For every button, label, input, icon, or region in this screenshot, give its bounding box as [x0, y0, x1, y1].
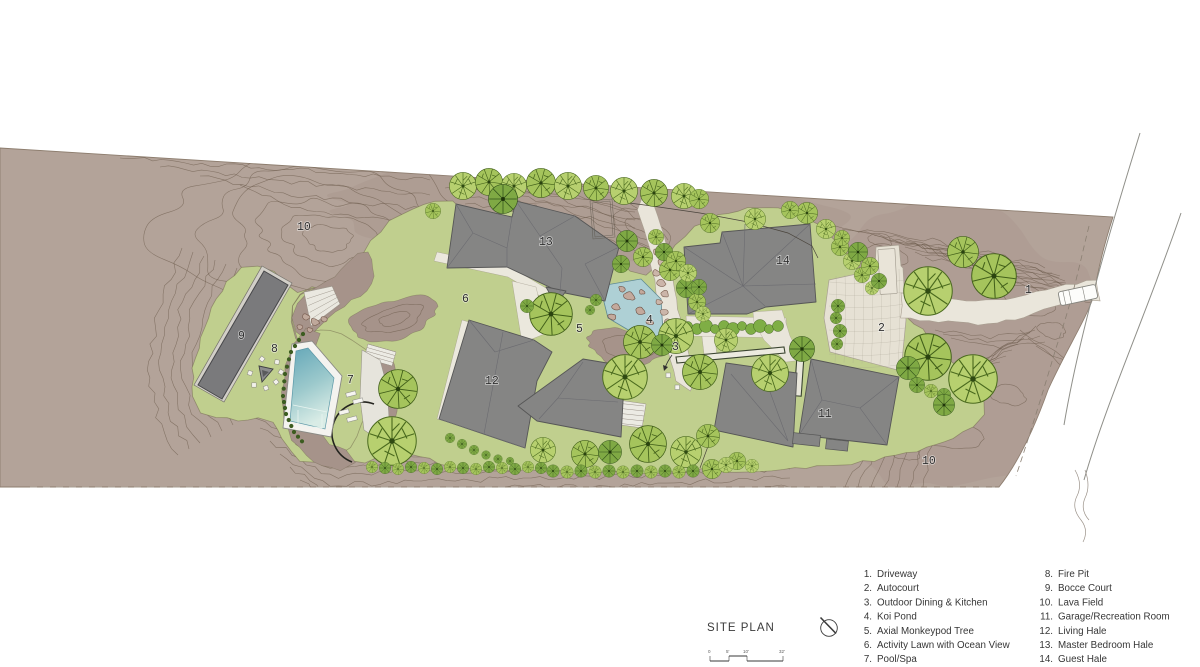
- svg-text:4: 4: [646, 314, 653, 327]
- svg-text:14: 14: [776, 255, 790, 268]
- svg-text:Pool/Spa: Pool/Spa: [877, 654, 917, 665]
- svg-text:Driveway: Driveway: [877, 569, 917, 580]
- svg-text:12.: 12.: [1039, 626, 1053, 637]
- svg-text:9: 9: [238, 330, 245, 343]
- svg-text:Activity Lawn with Ocean View: Activity Lawn with Ocean View: [877, 640, 1011, 651]
- svg-text:11.: 11.: [1040, 612, 1053, 623]
- svg-text:Living Hale: Living Hale: [1058, 626, 1107, 637]
- svg-text:11: 11: [818, 408, 832, 421]
- svg-text:4.: 4.: [864, 612, 872, 623]
- svg-text:12: 12: [485, 375, 499, 388]
- svg-text:13: 13: [539, 236, 553, 249]
- svg-text:14.: 14.: [1039, 654, 1053, 665]
- svg-text:1.: 1.: [864, 569, 872, 580]
- svg-text:Master Bedroom Hale: Master Bedroom Hale: [1058, 640, 1154, 651]
- svg-text:9.: 9.: [1045, 583, 1053, 594]
- svg-text:3.: 3.: [864, 597, 872, 608]
- svg-text:6.: 6.: [864, 640, 872, 651]
- svg-text:1: 1: [1025, 284, 1032, 297]
- svg-text:SITE PLAN: SITE PLAN: [707, 622, 775, 634]
- svg-text:Axial Monkeypod Tree: Axial Monkeypod Tree: [877, 626, 974, 637]
- svg-text:Koi Pond: Koi Pond: [877, 612, 917, 623]
- svg-text:Outdoor Dining & Kitchen: Outdoor Dining & Kitchen: [877, 597, 988, 608]
- svg-text:2: 2: [878, 322, 885, 335]
- svg-text:Garage/Recreation Room: Garage/Recreation Room: [1058, 612, 1170, 623]
- svg-text:7: 7: [347, 374, 354, 387]
- svg-text:10.: 10.: [1039, 597, 1053, 608]
- svg-text:32': 32': [779, 649, 785, 654]
- svg-text:3: 3: [672, 341, 679, 354]
- svg-text:8: 8: [271, 343, 278, 356]
- svg-text:5': 5': [726, 649, 730, 654]
- svg-text:8.: 8.: [1045, 569, 1053, 580]
- svg-text:13.: 13.: [1039, 640, 1053, 651]
- svg-text:Bocce Court: Bocce Court: [1058, 583, 1112, 594]
- svg-text:Lava Field: Lava Field: [1058, 597, 1103, 608]
- svg-text:Guest Hale: Guest Hale: [1058, 654, 1108, 665]
- svg-text:Autocourt: Autocourt: [877, 583, 919, 594]
- svg-text:6: 6: [462, 293, 469, 306]
- svg-text:0: 0: [708, 649, 711, 654]
- svg-text:Fire Pit: Fire Pit: [1058, 569, 1089, 580]
- svg-text:5: 5: [576, 323, 583, 336]
- svg-text:10': 10': [743, 649, 749, 654]
- svg-text:10: 10: [922, 455, 936, 468]
- svg-text:10: 10: [297, 221, 311, 234]
- svg-text:5.: 5.: [864, 626, 872, 637]
- svg-text:2.: 2.: [864, 583, 872, 594]
- svg-text:7.: 7.: [864, 654, 872, 665]
